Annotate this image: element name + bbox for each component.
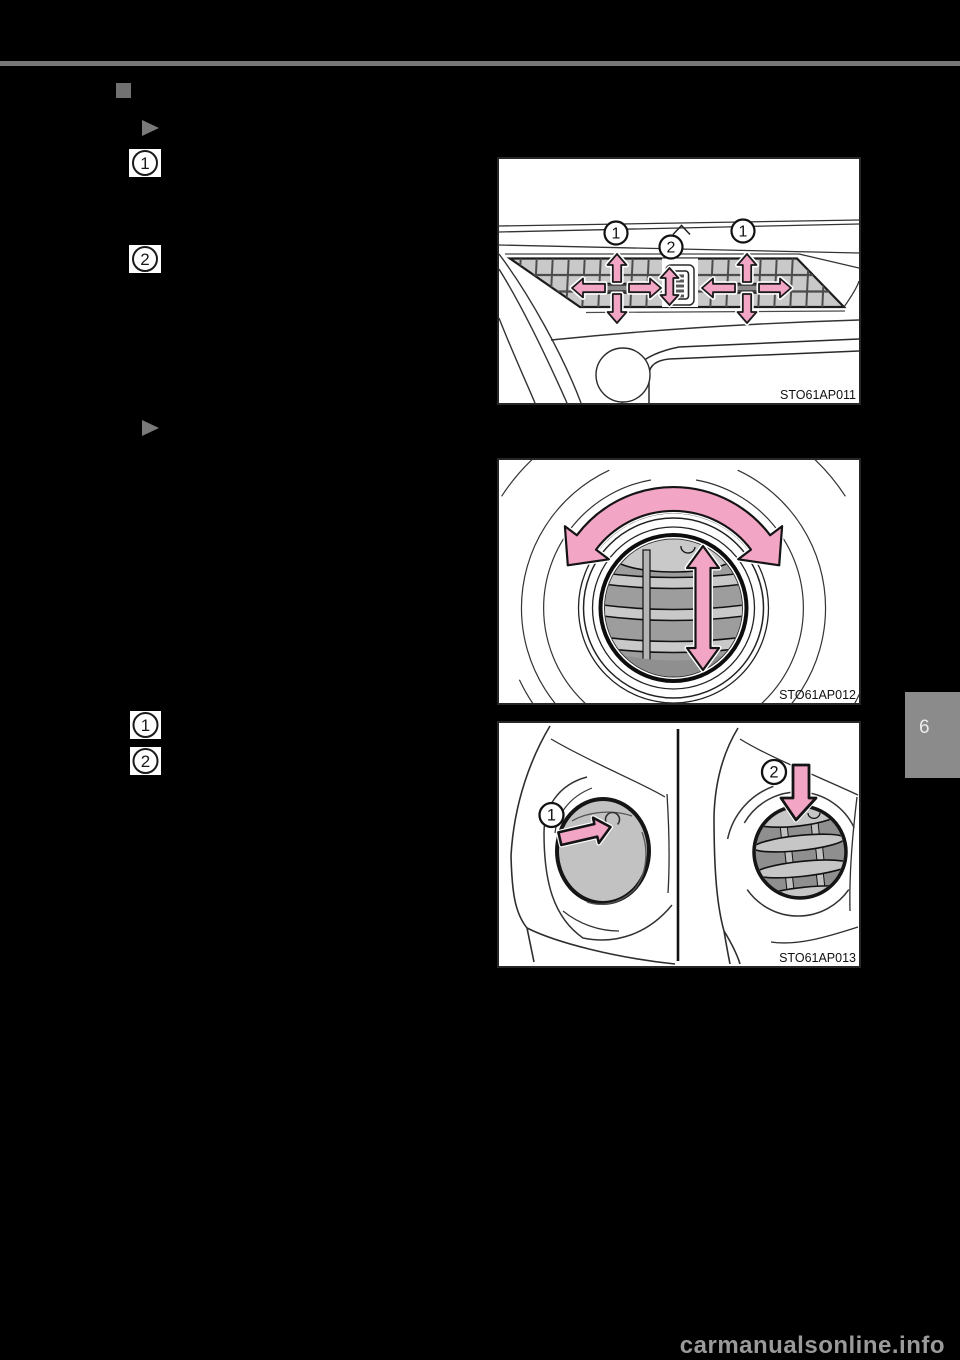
svg-text:2: 2 — [667, 240, 676, 257]
svg-text:STO61AP013: STO61AP013 — [779, 951, 856, 965]
svg-text:1: 1 — [612, 226, 621, 243]
svg-text:STO61AP012: STO61AP012 — [779, 688, 856, 702]
svg-text:1: 1 — [739, 224, 748, 241]
svg-text:1: 1 — [547, 807, 556, 825]
svg-text:1: 1 — [141, 716, 150, 735]
svg-text:2: 2 — [141, 752, 150, 771]
svg-text:STO61AP011: STO61AP011 — [780, 388, 856, 402]
svg-text:1: 1 — [140, 154, 149, 173]
svg-text:2: 2 — [140, 250, 149, 269]
svg-text:2: 2 — [769, 764, 778, 782]
